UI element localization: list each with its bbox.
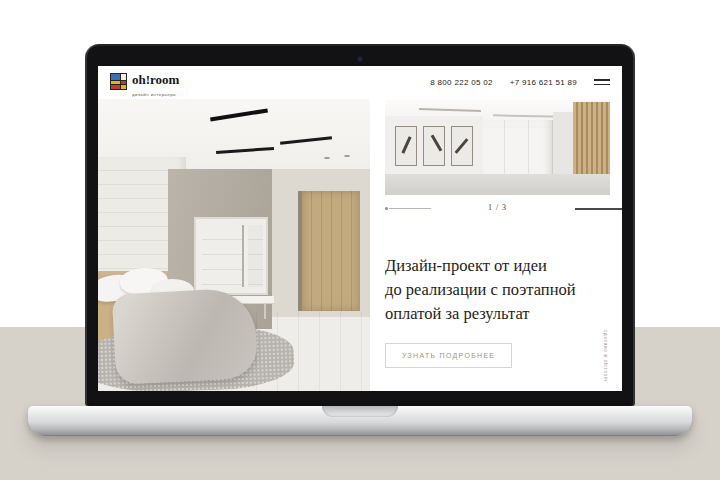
hero-heading-line: Дизайн-проект от идеи	[385, 254, 607, 278]
wall-art-frame	[395, 126, 417, 166]
mirror-cabinet	[194, 217, 268, 295]
carousel-nav: 1 / 3	[385, 201, 622, 215]
cta-learn-more-button[interactable]: УЗНАТЬ ПОДРОБНЕЕ	[385, 343, 512, 368]
hamburger-bar	[594, 84, 610, 86]
ceiling-spot	[324, 157, 330, 159]
bed-duvet	[112, 287, 259, 384]
backdrop: oh!room дизайн интерьера 8 800 222 05 02…	[0, 0, 720, 480]
vertical-credit-text: сделано в oh!room	[603, 330, 608, 382]
hero-heading-line: оплатой за результат	[385, 302, 607, 326]
hero-heading-line: до реализации с поэтапной	[385, 278, 607, 302]
logo-tagline: дизайн интерьера	[132, 92, 176, 97]
logo-cell-red-right	[121, 81, 126, 84]
logo-mondrian-icon	[110, 73, 127, 90]
phone-link-secondary[interactable]: +7 916 621 51 89	[510, 78, 577, 87]
carousel-slide-image[interactable]	[385, 100, 610, 195]
hallway-floor	[385, 174, 610, 195]
mirror-panel	[202, 225, 244, 287]
carousel-next-button[interactable]	[575, 201, 622, 215]
hero-heading: Дизайн-проект от идеи до реализации с по…	[385, 254, 607, 326]
wall-art-frame	[451, 126, 473, 166]
next-line-icon	[575, 208, 622, 210]
hamburger-bar	[594, 79, 610, 81]
logo-cell-red-left	[111, 85, 120, 89]
white-closet	[481, 120, 553, 178]
logo-cell-yellow-left	[111, 81, 120, 84]
wood-wardrobe	[302, 191, 360, 311]
ceiling-spot	[344, 155, 350, 157]
logo-cell-white	[121, 74, 126, 80]
logo-cell-yellow-right	[121, 85, 126, 89]
mirror-side-panel	[248, 225, 263, 287]
browser-page: oh!room дизайн интерьера 8 800 222 05 02…	[98, 66, 622, 391]
webcam-dot	[357, 56, 363, 62]
laptop-screen-bezel: oh!room дизайн интерьера 8 800 222 05 02…	[85, 44, 635, 406]
laptop-lid-notch	[322, 406, 398, 417]
logo-wordmark: oh!room	[132, 73, 224, 86]
hero-bedroom-image	[98, 99, 370, 391]
hallway-wall	[553, 112, 575, 178]
hamburger-menu-icon[interactable]	[594, 76, 610, 88]
header-right: 8 800 222 05 02 +7 916 621 51 89	[430, 66, 610, 98]
phone-link-primary[interactable]: 8 800 222 05 02	[430, 78, 492, 87]
logo-cell-blue	[111, 74, 120, 80]
laptop-base	[28, 406, 692, 436]
wall-art-frame	[423, 126, 445, 166]
